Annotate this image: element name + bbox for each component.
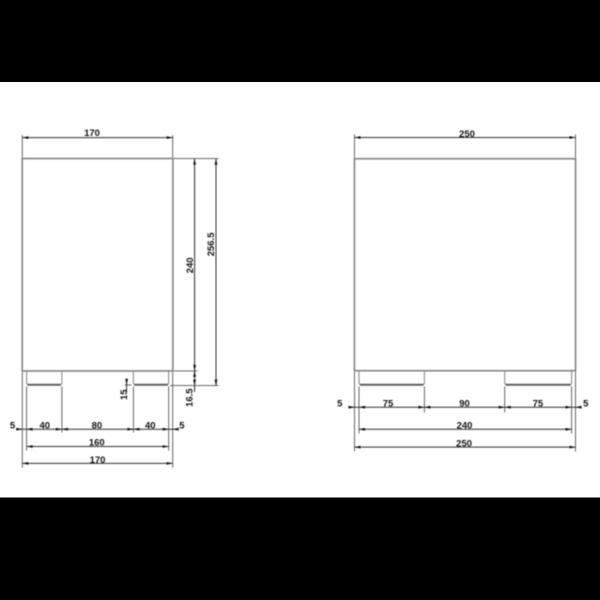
svg-text:40: 40: [145, 420, 156, 431]
svg-text:240: 240: [457, 420, 473, 431]
svg-text:256.5: 256.5: [206, 232, 217, 256]
svg-text:5: 5: [583, 398, 589, 409]
svg-text:15: 15: [119, 389, 130, 400]
svg-text:250: 250: [456, 439, 472, 450]
svg-text:160: 160: [89, 437, 105, 448]
svg-text:16.5: 16.5: [185, 388, 196, 407]
svg-text:5: 5: [10, 420, 16, 431]
svg-text:40: 40: [40, 420, 51, 431]
svg-text:5: 5: [179, 420, 185, 431]
svg-text:5: 5: [337, 398, 343, 409]
svg-text:170: 170: [90, 455, 106, 466]
svg-text:170: 170: [84, 128, 100, 139]
svg-text:75: 75: [383, 398, 394, 409]
svg-text:75: 75: [533, 398, 544, 409]
svg-text:250: 250: [459, 129, 475, 140]
svg-text:90: 90: [459, 398, 470, 409]
svg-text:240: 240: [185, 257, 196, 273]
svg-text:80: 80: [92, 420, 103, 431]
